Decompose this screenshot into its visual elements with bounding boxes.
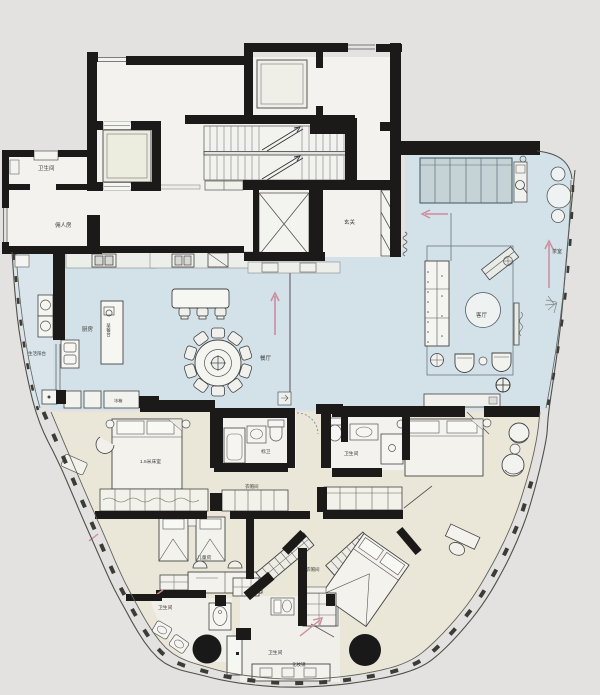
svg-text:衣帽间: 衣帽间 <box>306 566 320 573</box>
svg-text:1.5米床室: 1.5米床室 <box>140 458 161 465</box>
svg-text:茶室: 茶室 <box>552 248 562 255</box>
svg-text:卫生间: 卫生间 <box>38 164 55 172</box>
svg-text:化妆镜: 化妆镜 <box>292 661 306 668</box>
svg-text:早餐台: 早餐台 <box>106 323 112 338</box>
svg-text:客厅: 客厅 <box>476 311 488 319</box>
svg-text:儿童房: 儿童房 <box>197 554 212 561</box>
svg-text:卫生间: 卫生间 <box>268 649 283 656</box>
svg-text:标卫: 标卫 <box>261 448 271 455</box>
svg-text:餐厅: 餐厅 <box>260 354 272 362</box>
svg-text:衣帽间: 衣帽间 <box>245 483 259 490</box>
svg-text:厨房: 厨房 <box>82 325 94 333</box>
svg-text:玄关: 玄关 <box>344 218 356 226</box>
svg-text:卫生间: 卫生间 <box>344 450 359 457</box>
svg-text:生活阳台: 生活阳台 <box>28 350 46 357</box>
svg-text:卫生间: 卫生间 <box>158 604 173 611</box>
svg-text:冰箱: 冰箱 <box>114 397 122 404</box>
svg-text:佣人房: 佣人房 <box>55 221 72 229</box>
